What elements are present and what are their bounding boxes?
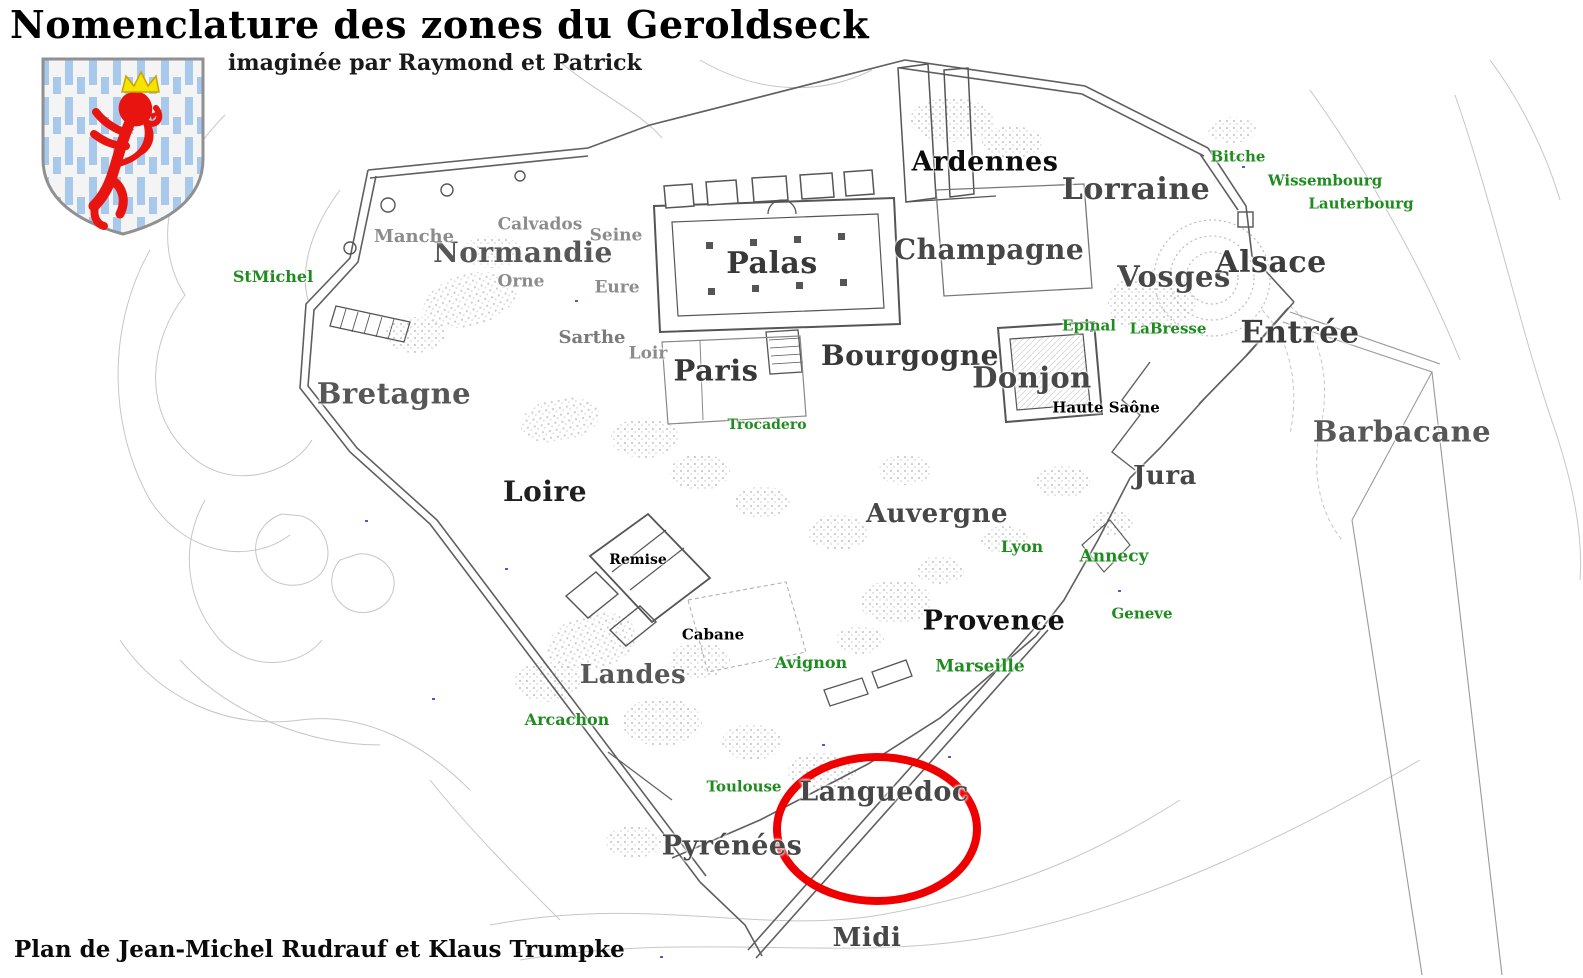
map-label-bretagne: Bretagne (317, 380, 471, 409)
map-label-cabane: Cabane (682, 628, 744, 643)
map-label-ardennes: Ardennes (912, 149, 1059, 176)
map-label-avignon: Avignon (775, 655, 847, 671)
map-label-languedoc: Languedoc (799, 779, 969, 806)
map-label-seine: Seine (590, 228, 643, 245)
map-label-haute-sa-ne: Haute Saône (1052, 401, 1160, 416)
map-label-geneve: Geneve (1111, 607, 1172, 622)
map-label-midi: Midi (833, 925, 902, 951)
map-label-provence: Provence (923, 608, 1066, 635)
map-label-bitche: Bitche (1211, 150, 1266, 165)
map-label-annecy: Annecy (1080, 549, 1149, 566)
map-label-auvergne: Auvergne (866, 501, 1008, 527)
map-label-vosges: Vosges (1117, 263, 1231, 292)
map-label-landes: Landes (580, 662, 686, 688)
map-label-loir: Loir (629, 346, 668, 363)
map-label-donjon: Donjon (972, 364, 1092, 393)
map-label-epinal: Epinal (1062, 319, 1116, 334)
map-label-lyon: Lyon (1001, 539, 1043, 555)
map-label-loire: Loire (503, 478, 587, 506)
map-label-manche: Manche (374, 228, 454, 246)
map-label-remise: Remise (609, 553, 666, 567)
map-label-trocadero: Trocadero (727, 418, 806, 432)
map-label-calvados: Calvados (498, 217, 583, 234)
geroldseck-plan-page: Nomenclature des zones du Geroldseck ima… (0, 0, 1583, 978)
map-label-labresse: LaBresse (1130, 322, 1207, 337)
map-label-wissembourg: Wissembourg (1268, 174, 1382, 189)
map-label-lorraine: Lorraine (1062, 175, 1210, 205)
map-label-jura: Jura (1133, 463, 1197, 489)
map-label-barbacane: Barbacane (1313, 418, 1491, 447)
map-label-alsace: Alsace (1215, 248, 1326, 278)
map-label-champagne: Champagne (894, 236, 1084, 264)
map-label-lauterbourg: Lauterbourg (1308, 197, 1413, 212)
map-label-marseille: Marseille (935, 659, 1024, 676)
map-label-arcachon: Arcachon (525, 712, 610, 728)
map-label-layer: ArdennesLorraineNormandiePalasChampagneV… (0, 0, 1583, 978)
map-label-eure: Eure (594, 280, 639, 297)
map-label-orne: Orne (498, 274, 545, 291)
map-label-paris: Paris (674, 357, 759, 386)
map-label-palas: Palas (726, 249, 817, 279)
map-label-stmichel: StMichel (233, 269, 313, 285)
map-label-entr-e: Entrée (1240, 318, 1359, 349)
map-label-pyr-n-es: Pyrénées (662, 833, 803, 860)
map-label-sarthe: Sarthe (559, 329, 626, 347)
map-label-toulouse: Toulouse (707, 780, 782, 795)
map-label-normandie: Normandie (433, 239, 613, 267)
